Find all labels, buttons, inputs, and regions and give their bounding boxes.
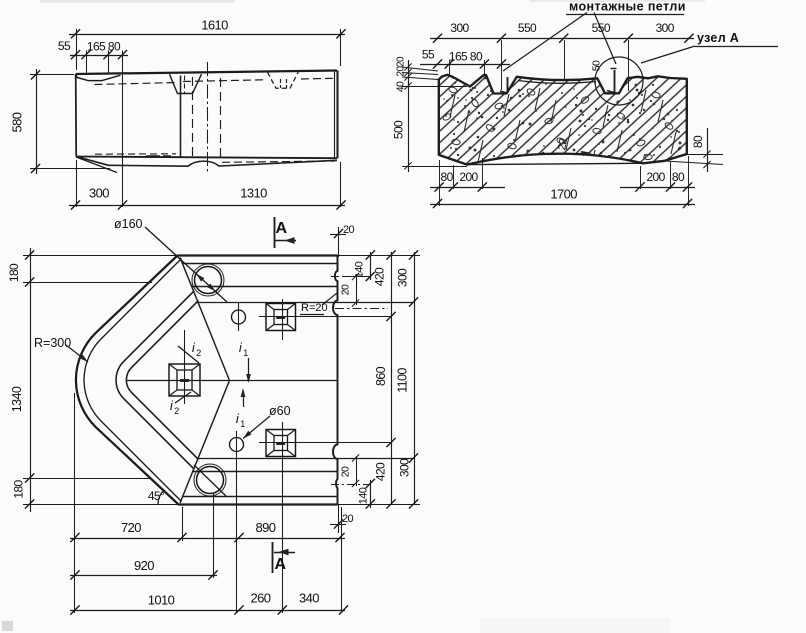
svg-text:40: 40: [395, 81, 407, 92]
svg-text:20: 20: [396, 56, 407, 67]
svg-text:300: 300: [656, 21, 675, 35]
svg-text:260: 260: [251, 591, 271, 606]
svg-text:R=300: R=300: [34, 336, 71, 350]
svg-text:80: 80: [672, 170, 685, 184]
svg-text:420: 420: [374, 462, 388, 481]
svg-text:ø160: ø160: [114, 217, 143, 231]
svg-text:i: i: [236, 411, 240, 426]
svg-text:200: 200: [646, 170, 665, 184]
svg-text:1: 1: [243, 348, 248, 358]
svg-text:860: 860: [374, 366, 388, 386]
svg-text:20: 20: [340, 466, 352, 477]
svg-text:1340: 1340: [10, 386, 24, 412]
svg-text:300: 300: [450, 21, 469, 35]
svg-text:2: 2: [196, 348, 201, 358]
svg-text:1310: 1310: [240, 186, 267, 201]
svg-text:1010: 1010: [148, 593, 175, 608]
svg-text:i: i: [170, 398, 174, 413]
svg-text:580: 580: [10, 112, 25, 132]
svg-text:1100: 1100: [396, 368, 410, 393]
svg-text:i: i: [192, 340, 196, 355]
svg-text:300: 300: [398, 458, 412, 477]
svg-text:монтажные петли: монтажные петли: [569, 0, 686, 14]
svg-text:920: 920: [134, 558, 154, 573]
svg-text:80: 80: [691, 135, 705, 148]
svg-text:узел А: узел А: [697, 31, 739, 45]
svg-text:720: 720: [121, 520, 141, 535]
svg-text:80: 80: [441, 170, 454, 184]
svg-text:140: 140: [358, 487, 370, 504]
svg-text:А: А: [276, 220, 288, 237]
svg-text:1610: 1610: [201, 18, 228, 33]
svg-text:80: 80: [470, 50, 483, 64]
svg-text:890: 890: [256, 520, 276, 535]
svg-text:20: 20: [396, 66, 407, 77]
svg-text:300: 300: [89, 186, 109, 201]
svg-text:2: 2: [174, 406, 179, 416]
svg-text:200: 200: [459, 170, 478, 184]
svg-text:1: 1: [240, 419, 245, 429]
svg-text:i: i: [239, 340, 243, 355]
svg-text:180: 180: [12, 479, 26, 498]
svg-text:500: 500: [392, 120, 406, 139]
svg-text:140: 140: [354, 261, 366, 278]
svg-text:420: 420: [373, 267, 387, 286]
svg-text:340: 340: [299, 591, 319, 606]
svg-text:180: 180: [7, 263, 21, 282]
svg-text:1700: 1700: [550, 187, 577, 202]
svg-text:80: 80: [108, 40, 121, 54]
svg-text:50: 50: [591, 60, 603, 71]
svg-text:20: 20: [343, 224, 355, 236]
svg-text:550: 550: [592, 21, 611, 35]
svg-text:55: 55: [58, 39, 71, 53]
svg-text:55: 55: [422, 48, 435, 62]
svg-text:550: 550: [518, 21, 537, 35]
svg-text:300: 300: [396, 268, 410, 287]
svg-text:20: 20: [340, 284, 352, 295]
svg-text:165: 165: [449, 50, 468, 64]
svg-text:165: 165: [87, 40, 106, 54]
svg-text:20: 20: [342, 513, 354, 525]
svg-text:ø60: ø60: [269, 404, 291, 418]
svg-text:А: А: [275, 556, 287, 573]
